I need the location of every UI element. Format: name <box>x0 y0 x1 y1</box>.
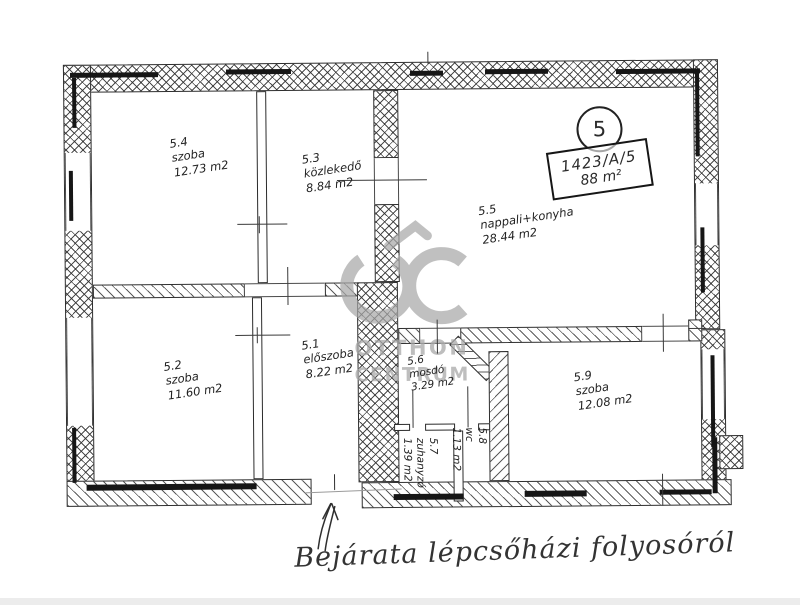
lintel-bar <box>410 71 443 76</box>
partition-56-57-seg1 <box>394 424 410 431</box>
wall-55-59-stub <box>688 319 702 341</box>
door-gap-55-59 <box>642 325 688 341</box>
room-id: 5.7 <box>426 438 440 488</box>
window-right-upper <box>695 183 719 245</box>
dimension-tick <box>235 327 290 343</box>
beam-bar <box>700 227 705 292</box>
lintel-bar <box>70 72 158 78</box>
lintel-bar <box>485 69 548 75</box>
partition-52-51 <box>252 297 264 479</box>
floorplan-drawing: OTTHON CENTRUM 5.4 szoba 12 <box>0 0 800 605</box>
lintel-bar <box>394 493 464 500</box>
wall-core-vertical <box>357 282 400 482</box>
wall-55-56-stub <box>398 328 420 344</box>
beam-bar <box>712 437 717 493</box>
room-label-5-6: 5.6 mosdó 3.29 m2 <box>406 349 455 394</box>
partition-54-53 <box>256 91 268 283</box>
beam-bar <box>72 428 76 483</box>
beam-bar <box>695 71 700 156</box>
room-label-5-8: 5.8 wc 1.13 m2 <box>449 427 489 471</box>
lintel-bar <box>525 490 587 497</box>
window-left-lower <box>66 318 93 426</box>
beam-bar <box>72 78 76 128</box>
unit-number: 5 <box>593 117 607 141</box>
room-label-5-2: 5.2 szoba 11.60 m2 <box>162 352 223 403</box>
entrance-arrow <box>317 475 338 551</box>
door-gap-53-51 <box>245 283 325 298</box>
wall-55-59 <box>460 326 642 344</box>
scan-edge-shadow <box>0 598 800 605</box>
lintel-bar <box>660 489 712 494</box>
room-name: zuhanyzó <box>413 438 427 488</box>
wall-53-51-stub <box>325 282 360 296</box>
lintel-bar <box>616 68 700 74</box>
room-area: 1.39 m2 <box>400 438 414 488</box>
beam-bar <box>710 355 715 447</box>
lot-plate: 1423/A/5 88 m² <box>546 138 654 201</box>
room-label-5-7: 5.7 zuhanyzó 1.39 m2 <box>400 438 440 488</box>
wall-56-59 <box>488 351 509 481</box>
lintel-bar <box>226 69 291 75</box>
entrance-caption: Bejárata lépcsőházi folyosóról <box>294 527 736 573</box>
wall-outer-left <box>63 65 95 507</box>
door-gap-53-55 <box>374 158 399 204</box>
room-area: 1.13 m2 <box>449 427 463 471</box>
wall-pillar-jut <box>719 435 743 469</box>
room-label-5-3: 5.3 közlekedő 8.84 m2 <box>301 144 365 195</box>
room-label-5-4: 5.4 szoba 12.73 m2 <box>169 129 230 180</box>
room-id: 5.8 <box>475 427 489 471</box>
wall-54-52 <box>93 283 245 298</box>
wall-53-55-lower <box>374 204 400 282</box>
window-glass-bar <box>69 171 73 221</box>
wall-outer-top <box>63 59 718 93</box>
room-label-5-9: 5.9 szoba 12.08 m2 <box>573 362 634 413</box>
room-name: wc <box>462 427 476 471</box>
room-label-5-1: 5.1 előszoba 8.22 m2 <box>300 331 357 381</box>
floorplan-canvas: OTTHON CENTRUM 5.4 szoba 12 <box>0 0 800 605</box>
wall-53-55-upper <box>373 90 399 158</box>
watermark-c-glyph <box>409 253 463 317</box>
